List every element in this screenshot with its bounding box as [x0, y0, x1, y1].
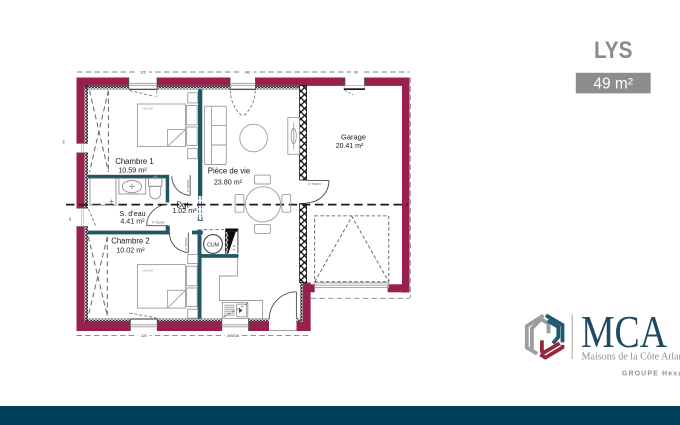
svg-text:Garage: Garage — [341, 133, 366, 142]
svg-text:140x200: 140x200 — [142, 106, 153, 110]
svg-text:90: 90 — [68, 217, 72, 221]
svg-text:CUM: CUM — [207, 242, 219, 248]
svg-text:49 m²: 49 m² — [593, 76, 633, 93]
svg-text:10.59 m²: 10.59 m² — [118, 165, 147, 174]
svg-text:Maisons de la Côte Atlantique: Maisons de la Côte Atlantique — [582, 352, 680, 363]
svg-text:P 75/204: P 75/204 — [184, 237, 188, 250]
svg-text:4.41 m²: 4.41 m² — [120, 216, 145, 225]
svg-text:90: 90 — [354, 71, 358, 75]
svg-text:P 75/204: P 75/204 — [186, 179, 190, 192]
svg-text:P 75/204: P 75/204 — [152, 220, 165, 224]
svg-text:23.80 m²: 23.80 m² — [214, 177, 243, 186]
svg-text:P 75/204: P 75/204 — [309, 182, 322, 186]
svg-text:60: 60 — [62, 140, 66, 144]
svg-text:120: 120 — [140, 71, 146, 75]
svg-text:MCA: MCA — [581, 306, 667, 357]
svg-text:Pièce de vie: Pièce de vie — [208, 167, 250, 176]
svg-text:120: 120 — [141, 334, 147, 338]
svg-text:20.41 m²: 20.41 m² — [336, 143, 364, 150]
svg-text:249/215: 249/215 — [227, 334, 239, 338]
svg-text:10.02 m²: 10.02 m² — [116, 245, 145, 254]
svg-text:140x200: 140x200 — [142, 269, 153, 273]
svg-text:GROUPE Hexaōm: GROUPE Hexaōm — [622, 371, 680, 378]
svg-text:1.02 m²: 1.02 m² — [172, 206, 197, 215]
svg-text:LYS: LYS — [594, 37, 633, 64]
svg-text:140: 140 — [245, 71, 251, 75]
